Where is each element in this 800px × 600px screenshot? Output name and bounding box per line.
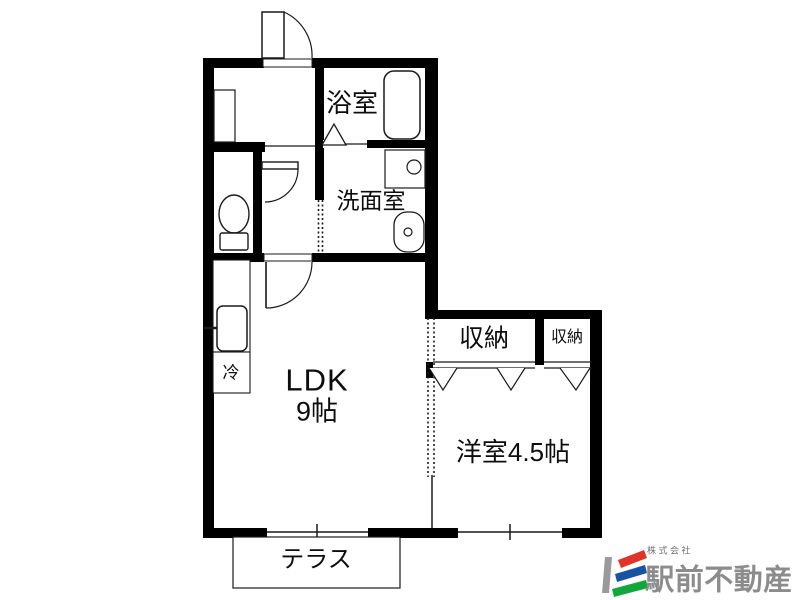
wall-toilet-divider [253, 152, 262, 253]
entrance-sill [263, 59, 312, 67]
toilet-door-leaf [262, 162, 298, 169]
terrace-label: テラス [280, 548, 352, 572]
wall-right-upper [425, 58, 438, 318]
closet-large-label: 収納 [459, 327, 509, 352]
wall-foyer-bottom [203, 142, 265, 152]
bath-room-label: 浴室 [326, 90, 378, 116]
closet-door-markers [429, 368, 590, 390]
doors [262, 12, 346, 308]
logo-bar-green [612, 580, 648, 597]
wall-ldk-top-right [312, 253, 438, 262]
wall-bottom-3 [562, 528, 602, 538]
wall-closet-top [425, 310, 602, 319]
logo-bar-blue [615, 565, 647, 582]
entrance-door-leaf [262, 12, 284, 58]
wall-bath-bottom-b [367, 140, 438, 148]
ldk-door-sill [264, 254, 312, 261]
company-name-label: 駅前不動産 [645, 567, 793, 596]
logo-bar-red [618, 550, 647, 568]
ldk-room-label: LDK [285, 365, 348, 396]
wall-bath-left [315, 68, 324, 140]
wall-left-outer [203, 58, 214, 538]
toilet-bowl [219, 195, 249, 233]
wall-bath-bottom-a [315, 140, 323, 148]
wall-top-right [312, 58, 438, 68]
closet-v-3 [560, 368, 590, 390]
wall-right-lower [590, 310, 602, 538]
toilet-door-arc [265, 169, 298, 202]
washroom-label: 洗面室 [337, 190, 406, 213]
western-room-label: 洋室4.5帖 [456, 439, 570, 465]
entrance-door-arc [284, 12, 312, 58]
floorplan-canvas [0, 0, 800, 600]
wall-washroom-left [315, 148, 324, 200]
floor-plan-page: 浴室 洗面室 LDK 9帖 冷 収納 収納 洋室4.5帖 テラス 株式会社 駅前… [0, 0, 800, 600]
bath-folding-door [322, 124, 346, 145]
kitchen-sink [217, 306, 247, 351]
shoe-cabinet [214, 90, 235, 142]
washbasin-drain [404, 228, 412, 236]
logo-bar-gray [602, 557, 612, 593]
ldk-door-arc [266, 262, 312, 308]
company-prefix-label: 株式会社 [647, 547, 693, 556]
ldk-size-label: 9帖 [296, 399, 338, 426]
wall-closet-divider [535, 319, 544, 365]
toilet-tank [220, 233, 248, 250]
company-logo-mark [602, 550, 648, 597]
closet-small-label: 収納 [551, 330, 583, 346]
fridge-label: 冷 [223, 365, 240, 382]
closet-v-2 [497, 368, 525, 390]
bathtub [384, 71, 420, 139]
laundry-pan-drain [407, 160, 421, 174]
